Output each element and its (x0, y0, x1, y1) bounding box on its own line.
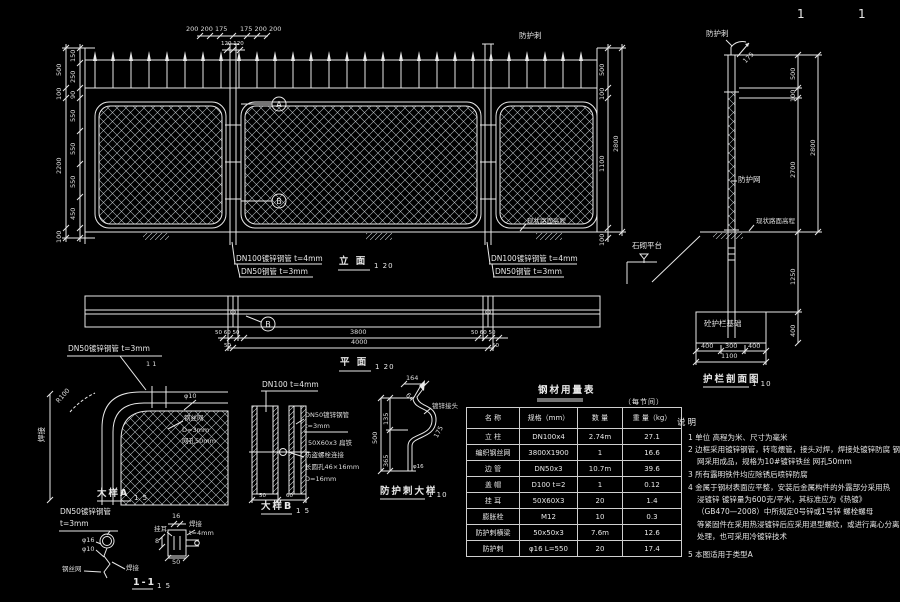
section-dim-bottom-400r: 400 (748, 343, 760, 350)
spike-dim-135: 135 (383, 413, 390, 425)
plan-dim-post-left: 50 60 50 (215, 330, 240, 336)
elevation-scale: 1 20 (374, 262, 394, 270)
table-row: 防护刺横梁 50x50x3 7.6m 12.6 (467, 525, 682, 541)
cell-qty: 20 (578, 493, 623, 509)
note-line: 3 所有露明铁件均应除锈后喷锌防腐 (688, 471, 808, 480)
table-subtitle: （每节间） (624, 398, 664, 406)
detail-a-scale: 1 5 (134, 494, 148, 502)
elevation-dn100-label-right: DN100镀锌钢管 t=4mm (491, 255, 578, 264)
detail-b-dim50: 50 (259, 493, 266, 499)
note-line: 5 本图适用于类型A (688, 551, 753, 560)
table-row: 编织钢丝网 3800X1900 1 16.6 (467, 445, 682, 461)
detail-b-top-label: DN100 t=4mm (262, 381, 319, 390)
cell-qty: 20 (578, 541, 623, 557)
cell-name: 挂 耳 (467, 493, 520, 509)
section-platform-label: 石砌平台 (632, 242, 662, 251)
dim-right-2800: 2800 (613, 135, 620, 152)
section-dim-2700: 2700 (790, 161, 797, 178)
section-dim-bottom-400l: 400 (701, 343, 713, 350)
dim-right-100: 100 (599, 88, 606, 100)
dim-left-550b: 550 (70, 143, 77, 155)
note-line: 处理，也可采用冷镀锌技术 (697, 533, 787, 542)
detail-a-title: 大样A (97, 489, 129, 500)
cell-weight: 1.4 (623, 493, 682, 509)
elevation-dn100-label-left: DN100镀锌钢管 t=4mm (236, 255, 323, 264)
cell-spec: 3800X1900 (520, 445, 578, 461)
section-dim-bottom-300: 300 (725, 343, 737, 350)
cell-qty: 1 (578, 477, 623, 493)
material-table: 名 称 规格（mm） 数 量 重 量（kg） 立 柱 DN100x4 2.74m… (466, 407, 682, 557)
sheet-number-left: 1 (797, 8, 805, 22)
section11-weld-left: 焊接 (126, 565, 139, 572)
section-view-scale: 1 10 (752, 380, 772, 388)
section-foundation-label: 砼护栏基础 (704, 320, 742, 329)
section11-dim16: 16 (172, 513, 180, 520)
section11-weld-thick: t=4mm (189, 530, 214, 537)
spike-detail-scale: 1 10 (428, 491, 448, 499)
note-line: 浸镀锌 镀锌量为600克/平米，其标准应为《热镀》 (697, 496, 866, 505)
dim-left-100: 100 (56, 88, 63, 100)
elevation-dn50-label-left: DN50钢管 t=3mm (241, 268, 308, 277)
cad-drawing-sheet: A B B 1 1 200 200 175 175 200 200 120 12… (0, 0, 900, 602)
plan-dim-post-right: 50 60 50 (471, 330, 496, 336)
detail-b-bolt-label: 防盗螺栓连接 (305, 452, 344, 459)
table-row: 挂 耳 50X60X3 20 1.4 (467, 493, 682, 509)
section-spike-label: 防护刺 (706, 30, 729, 39)
section-dim-2800: 2800 (810, 139, 817, 156)
detail-a-pipe-label: DN50镀锌钢管 t=3mm (68, 345, 150, 354)
cell-weight: 39.6 (623, 461, 682, 477)
spike-dim-500: 500 (372, 432, 379, 444)
section11-title: 1-1 (133, 578, 156, 589)
cell-spec: DN50x3 (520, 461, 578, 477)
section11-pipe-label-2: t=3mm (60, 520, 89, 529)
section-mesh-label: 防护网 (738, 176, 761, 185)
section-dim-bottom-1100: 1100 (721, 353, 738, 360)
dim-right-100b: 100 (599, 234, 606, 246)
plan-dim-small-left: 50 (224, 343, 231, 349)
detail-b-title: 大样B (261, 502, 293, 513)
table-header-qty: 数 量 (578, 408, 623, 429)
section11-lug-label: 挂耳 (154, 526, 167, 533)
section11-weld-right: 焊接 (189, 521, 202, 528)
detail-a-weld-label: 焊接 (38, 427, 47, 442)
detail-a-wire-dia: φ10 (184, 393, 197, 400)
dim-top-left: 200 200 175 (186, 26, 227, 33)
note-line: 4 金属于钢材表面应平整，安装后金属构件的外露部分采用热 (688, 484, 890, 493)
callout-b-letter: B (276, 197, 282, 206)
cell-name: 膨胀栓 (467, 509, 520, 525)
sheet-number-right: 1 (858, 8, 866, 22)
spike-dim-365: 365 (383, 455, 390, 467)
detail-b-d16-label: D=16mm (305, 476, 336, 483)
detail-b-scale: 1 5 (296, 507, 310, 515)
section11-dim8: 8 (155, 538, 159, 545)
section11-pipe-label-1: DN50镀锌钢管 (60, 508, 111, 517)
cell-spec: φ16 L=550 (520, 541, 578, 557)
spike-dim-164: 164 (406, 375, 418, 382)
table-header-name: 名 称 (467, 408, 520, 429)
detail-a-mesh-label-3: 网孔50mm (182, 438, 216, 445)
section11-dia16: φ16 (82, 537, 95, 544)
cell-weight: 16.6 (623, 445, 682, 461)
dim-top-center: 120 120 (221, 41, 244, 47)
plan-dim-small-right: 50 (492, 343, 499, 349)
cell-name: 盖 帽 (467, 477, 520, 493)
elevation-ground-label: 现状路面高程 (527, 218, 566, 225)
table-row: 立 柱 DN100x4 2.74m 27.1 (467, 429, 682, 445)
dim-right-1100: 1100 (599, 155, 606, 172)
plan-dim-mid: 3800 (350, 329, 367, 336)
section11-mesh-label: 钢丝网 (62, 566, 82, 573)
detail-a-mesh-label-1: 钢丝网 (184, 415, 204, 422)
section-dim-500: 500 (790, 68, 797, 80)
cell-weight: 0.3 (623, 509, 682, 525)
cell-weight: 27.1 (623, 429, 682, 445)
table-row: 防护刺 φ16 L=550 20 17.4 (467, 541, 682, 557)
table-row: 膨胀栓 M12 10 0.3 (467, 509, 682, 525)
section11-dim50: 50 (172, 559, 180, 566)
detail-b-dn50-label: DN50镀锌钢管 (305, 412, 349, 419)
section11-dia10: φ10 (82, 546, 95, 553)
cell-name: 防护刺横梁 (467, 525, 520, 541)
note-line: 1 单位 高程为米、尺寸为毫米 (688, 434, 788, 443)
cell-spec: DN100x4 (520, 429, 578, 445)
dim-left-250: 250 (70, 71, 77, 83)
notes-heading: 说明 (677, 419, 698, 429)
cell-name: 编织钢丝网 (467, 445, 520, 461)
cell-spec: D100 t=2 (520, 477, 578, 493)
table-row: 盖 帽 D100 t=2 1 0.12 (467, 477, 682, 493)
dim-top-right: 175 200 200 (240, 26, 281, 33)
dim-left-2200: 2200 (56, 157, 63, 174)
detail-b-slot-label: 长圆孔46×16mm (305, 464, 359, 471)
cell-name: 防护刺 (467, 541, 520, 557)
callout-a-letter: A (276, 100, 282, 109)
section-dim-1250: 1250 (790, 268, 797, 285)
section-ground-label: 现状路面高程 (756, 218, 795, 225)
section-dim-100: 100 (790, 90, 797, 102)
cell-qty: 10.7m (578, 461, 623, 477)
dim-left-100b: 100 (56, 231, 63, 243)
detail-a-mesh-label-2: D=3mm (182, 427, 209, 434)
dim-right-500: 500 (599, 64, 606, 76)
cell-spec: M12 (520, 509, 578, 525)
elevation-dn50-label-right: DN50钢管 t=3mm (495, 268, 562, 277)
table-header-weight: 重 量（kg） (623, 408, 682, 429)
cell-name: 立 柱 (467, 429, 520, 445)
dim-left-90: 90 (70, 91, 77, 99)
plan-title: 平 面 (340, 358, 368, 369)
dim-left-450: 450 (70, 208, 77, 220)
detail-b-flat-label: 50X60x3 扁铁 (308, 440, 352, 447)
table-row: 边 管 DN50x3 10.7m 39.6 (467, 461, 682, 477)
cell-qty: 10 (578, 509, 623, 525)
note-line: 等紧固件在采用热浸镀锌后应采用退型螺纹，或进行离心分离 (697, 521, 900, 530)
dim-left-150: 150 (70, 50, 77, 62)
table-header-row: 名 称 规格（mm） 数 量 重 量（kg） (467, 408, 682, 429)
note-line: 2 边框采用镀锌钢管，转弯煨管，接头对焊，焊接处镀锌防腐 钢丝 (688, 446, 900, 455)
spike-joint-label: 镀锌接头 (432, 403, 458, 410)
note-line: 网采用成品，规格为10#镀锌铁丝 网孔50mm (697, 458, 852, 467)
elevation-spike-label: 防护刺 (519, 32, 542, 41)
detail-b-t3-label: t=3mm (305, 423, 330, 430)
cell-qty: 7.6m (578, 525, 623, 541)
plan-callout-b-letter: B (265, 320, 271, 329)
table-header-spec: 规格（mm） (520, 408, 578, 429)
cell-weight: 12.6 (623, 525, 682, 541)
cell-weight: 17.4 (623, 541, 682, 557)
dim-left-500: 500 (56, 64, 63, 76)
dim-left-550c: 550 (70, 176, 77, 188)
detail-a-section-marks: 1 1 (146, 361, 156, 368)
cell-weight: 0.12 (623, 477, 682, 493)
plan-dim-total: 4000 (351, 339, 368, 346)
note-line: （GB470—2008）中所规定0号锌或1号锌 螺栓螺母 (697, 508, 873, 517)
cell-qty: 2.74m (578, 429, 623, 445)
elevation-title: 立 面 (339, 257, 367, 268)
spike-dim-phi16: φ16 (413, 464, 424, 470)
section11-scale: 1 5 (157, 582, 171, 590)
section-dim-400b: 400 (790, 325, 797, 337)
table-title: 钢材用量表 (538, 386, 596, 397)
cell-qty: 1 (578, 445, 623, 461)
cell-spec: 50X60X3 (520, 493, 578, 509)
cell-spec: 50x50x3 (520, 525, 578, 541)
dim-left-550a: 550 (70, 110, 77, 122)
plan-scale: 1 20 (375, 363, 395, 371)
detail-b-dim60: 60 (286, 493, 293, 499)
cell-name: 边 管 (467, 461, 520, 477)
